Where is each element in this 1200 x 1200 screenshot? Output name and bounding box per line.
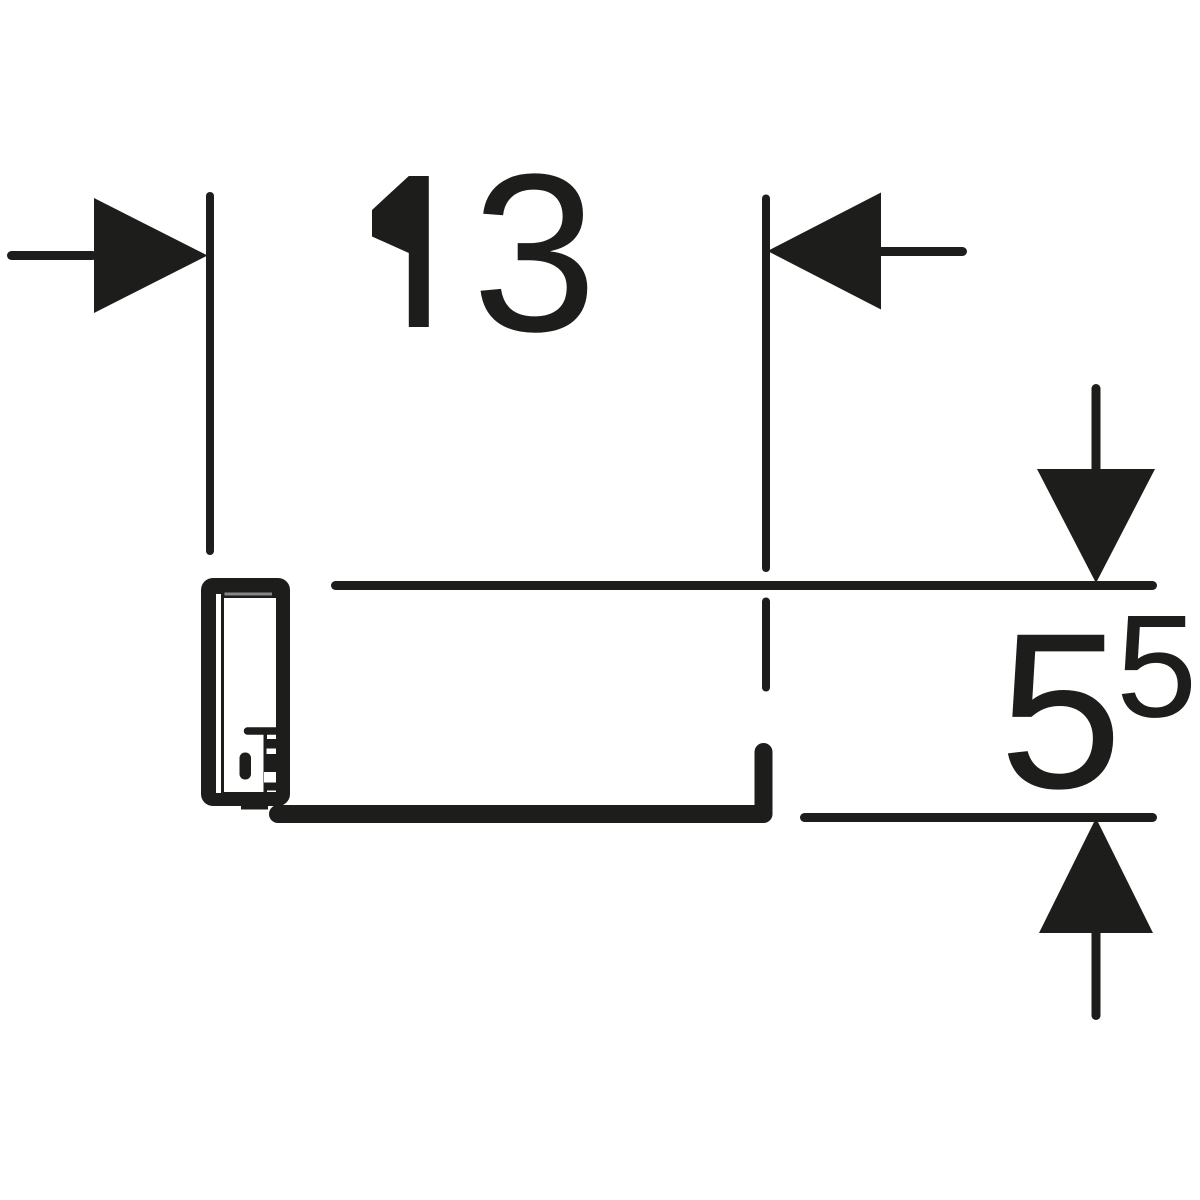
svg-text:5: 5 <box>1116 585 1197 748</box>
svg-text:3: 3 <box>472 127 597 379</box>
svg-text:5: 5 <box>999 588 1122 836</box>
